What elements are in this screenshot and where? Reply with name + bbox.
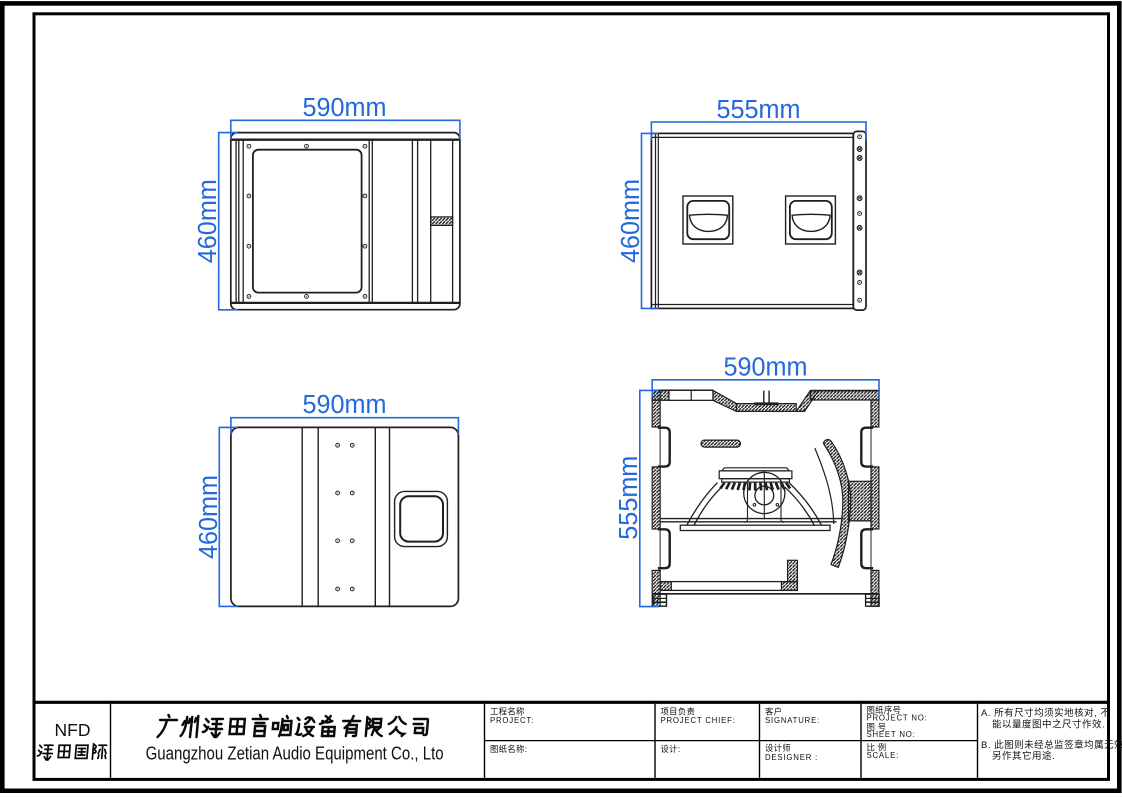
svg-text:设计:: 设计: bbox=[661, 744, 681, 754]
svg-text:590mm: 590mm bbox=[303, 94, 387, 122]
svg-text:工程名称: 工程名称 bbox=[490, 707, 525, 717]
svg-text:Guangzhou Zetian Audio Equipme: Guangzhou Zetian Audio Equipment Co., Lt… bbox=[146, 743, 444, 764]
svg-text:A. 所有尺寸均须实地核对, 不: A. 所有尺寸均须实地核对, 不 bbox=[981, 707, 1110, 719]
svg-text:SHEET NO:: SHEET NO: bbox=[867, 730, 916, 739]
svg-text:SCALE:: SCALE: bbox=[867, 751, 900, 760]
svg-text:555mm: 555mm bbox=[615, 456, 643, 540]
svg-text:DESIGNER :: DESIGNER : bbox=[765, 753, 818, 762]
svg-text:555mm: 555mm bbox=[717, 96, 801, 124]
svg-text:SIGNATURE:: SIGNATURE: bbox=[765, 716, 820, 725]
svg-text:另作其它用途.: 另作其它用途. bbox=[992, 750, 1055, 762]
svg-text:460mm: 460mm bbox=[194, 179, 222, 263]
svg-text:设计师: 设计师 bbox=[765, 743, 791, 753]
svg-text:590mm: 590mm bbox=[724, 354, 808, 382]
svg-text:B. 此图则未经总监签章均属无效.: B. 此图则未经总监签章均属无效. bbox=[981, 739, 1122, 751]
svg-text:PROJECT CHIEF:: PROJECT CHIEF: bbox=[661, 716, 736, 725]
svg-text:460mm: 460mm bbox=[617, 179, 645, 263]
svg-text:能以量度图中之尺寸作效.: 能以量度图中之尺寸作效. bbox=[992, 719, 1105, 731]
svg-text:图纸名称:: 图纸名称: bbox=[490, 744, 527, 754]
svg-text:NFD: NFD bbox=[55, 720, 91, 740]
svg-text:590mm: 590mm bbox=[303, 391, 387, 419]
svg-text:460mm: 460mm bbox=[195, 475, 223, 559]
svg-text:PROJECT:: PROJECT: bbox=[490, 716, 534, 725]
svg-text:客户: 客户 bbox=[765, 707, 782, 717]
svg-text:项目负责: 项目负责 bbox=[661, 707, 696, 717]
